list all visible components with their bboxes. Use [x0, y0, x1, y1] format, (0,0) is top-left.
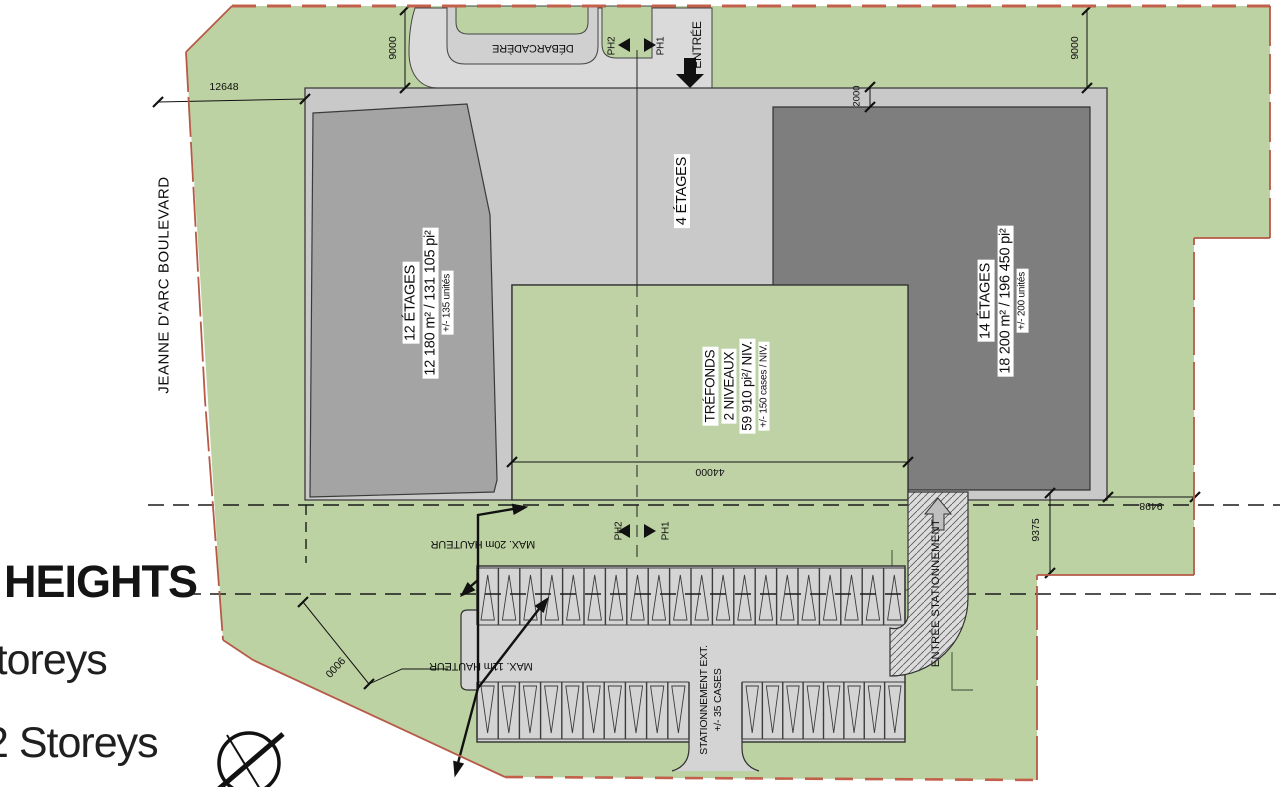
dim-tower-inset: 2000 — [852, 85, 863, 106]
underground-name: TRÉFONDS — [702, 347, 718, 426]
exterior-parking-label: STATIONNEMENT EXT. +/- 35 CASES — [698, 642, 724, 758]
exterior-parking-line2: +/- 35 CASES — [712, 665, 724, 734]
dim-south-setback-east: 9375 — [1030, 518, 1042, 541]
entrance-label: ENTRÉE — [690, 21, 704, 68]
phase-left-label-top: PH2 — [607, 37, 618, 56]
west-building-storeys: 12 ÉTAGES — [403, 262, 420, 344]
phase-right-label-top: PH1 — [656, 37, 667, 56]
phase-right-label-mid: PH1 — [661, 522, 672, 541]
legend-item-top: Storeys — [0, 636, 107, 685]
dim-east-setback: 9498 — [1139, 500, 1162, 512]
dim-west-setback: 12648 — [209, 81, 238, 93]
dropoff-label: DÉBARCADÈRE — [492, 42, 574, 54]
west-building-area: 12 180 m² / 131 105 pi² — [422, 227, 439, 378]
west-building-units: +/- 135 unités — [442, 271, 454, 335]
east-tower-label: 14 ÉTAGES 18 200 m² / 196 450 pi² +/- 20… — [978, 225, 1029, 376]
legend-title: HEIGHTS — [4, 556, 197, 608]
podium-storeys: 4 ÉTAGES — [674, 154, 690, 228]
site-plan: JEANNE D'ARC BOULEVARD 12 ÉTAGES 12 180 … — [0, 0, 1280, 787]
west-building-label: 12 ÉTAGES 12 180 m² / 131 105 pi² +/- 13… — [403, 227, 454, 378]
east-tower-storeys: 14 ÉTAGES — [978, 260, 995, 342]
dim-underground-width: 44000 — [695, 466, 724, 478]
street-label: JEANNE D'ARC BOULEVARD — [156, 176, 173, 394]
dim-north-setback-west: 9000 — [387, 36, 399, 59]
east-tower-units: +/- 200 unités — [1017, 269, 1029, 333]
underground-area: 59 910 pi²/ NIV. — [740, 338, 756, 433]
height-limit-20m: MAX. 20m HAUTEUR — [431, 538, 535, 550]
legend-item-bottom: 2 Storeys — [0, 719, 158, 768]
dim-north-setback-east: 9000 — [1069, 36, 1081, 59]
site-plan-drawing — [0, 0, 1280, 787]
podium-label: 4 ÉTAGES — [673, 154, 691, 228]
dropoff-island — [456, 6, 588, 34]
north-arrow-icon — [207, 733, 283, 787]
height-limit-11m: MAX. 11m HAUTEUR — [429, 660, 533, 672]
exterior-parking-line1: STATIONNEMENT EXT. — [698, 642, 710, 758]
underground-label: TRÉFONDS 2 NIVEAUX 59 910 pi²/ NIV. +/- … — [702, 338, 769, 433]
parking-entrance-label: ENTRÉE STATIONNEMENT — [930, 519, 942, 667]
phase-left-label-mid: PH2 — [614, 522, 625, 541]
underground-spaces: +/- 150 cases / NIV. — [758, 341, 770, 430]
underground-levels: 2 NIVEAUX — [721, 349, 737, 424]
east-tower-area: 18 200 m² / 196 450 pi² — [997, 225, 1014, 376]
